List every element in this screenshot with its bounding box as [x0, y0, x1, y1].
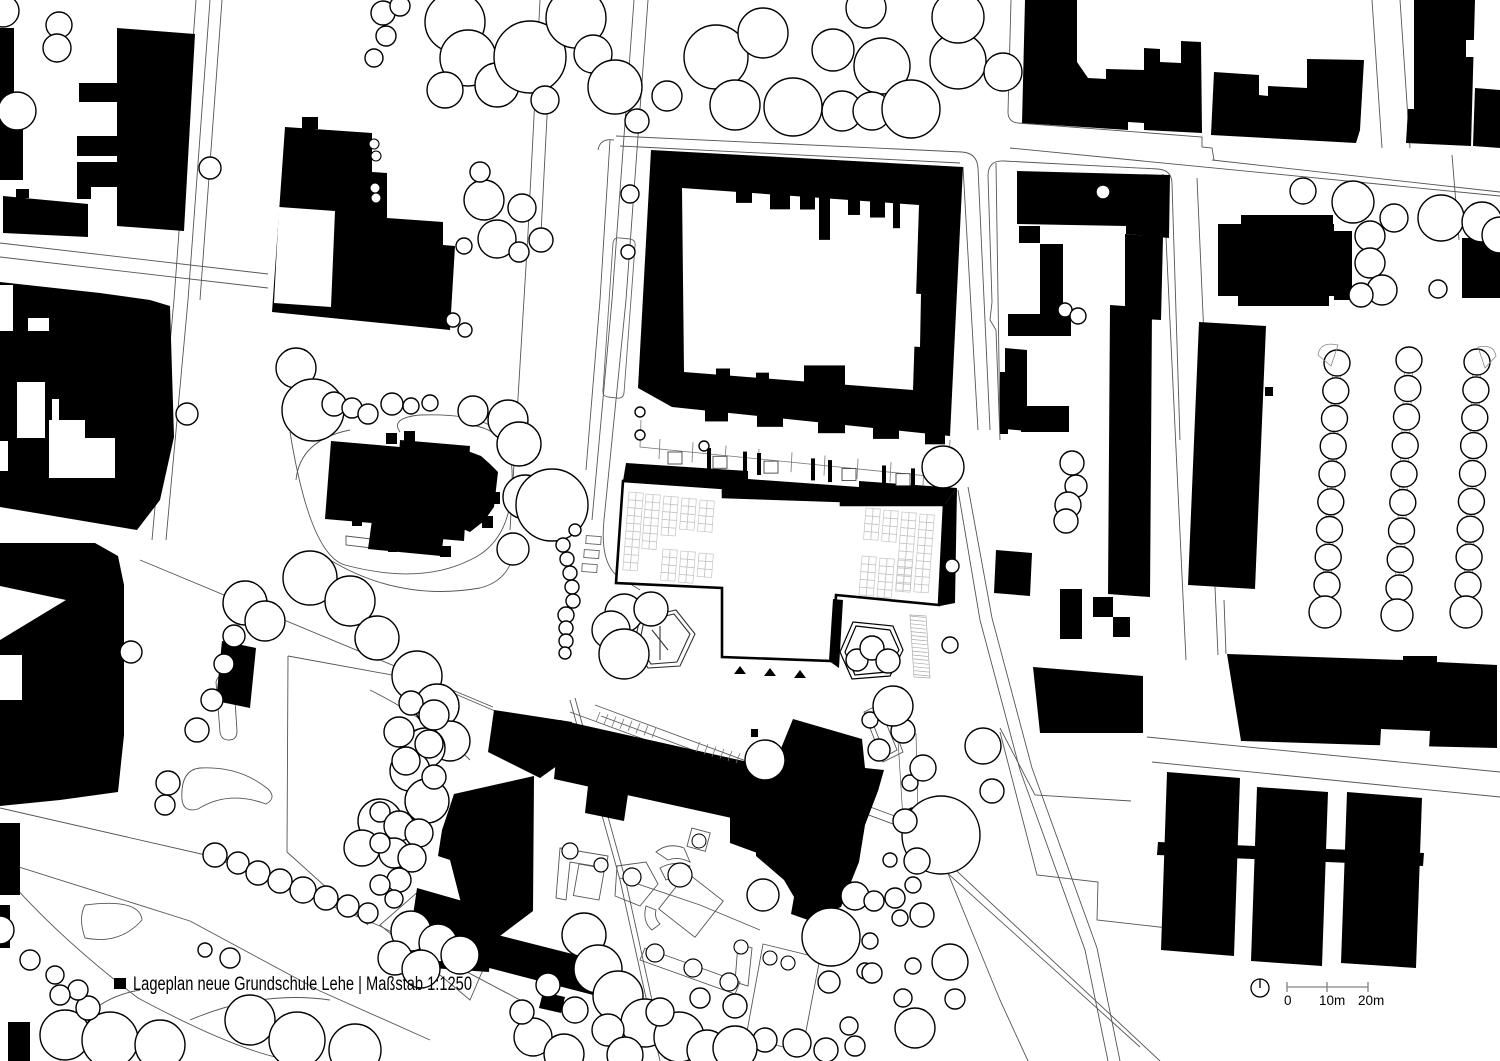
svg-text:20m: 20m — [1358, 993, 1384, 1008]
svg-text:10m: 10m — [1319, 993, 1345, 1008]
svg-text:0: 0 — [1284, 993, 1292, 1008]
svg-text:Lageplan neue Grundschule Lehe: Lageplan neue Grundschule Lehe | Maßstab… — [133, 974, 472, 995]
